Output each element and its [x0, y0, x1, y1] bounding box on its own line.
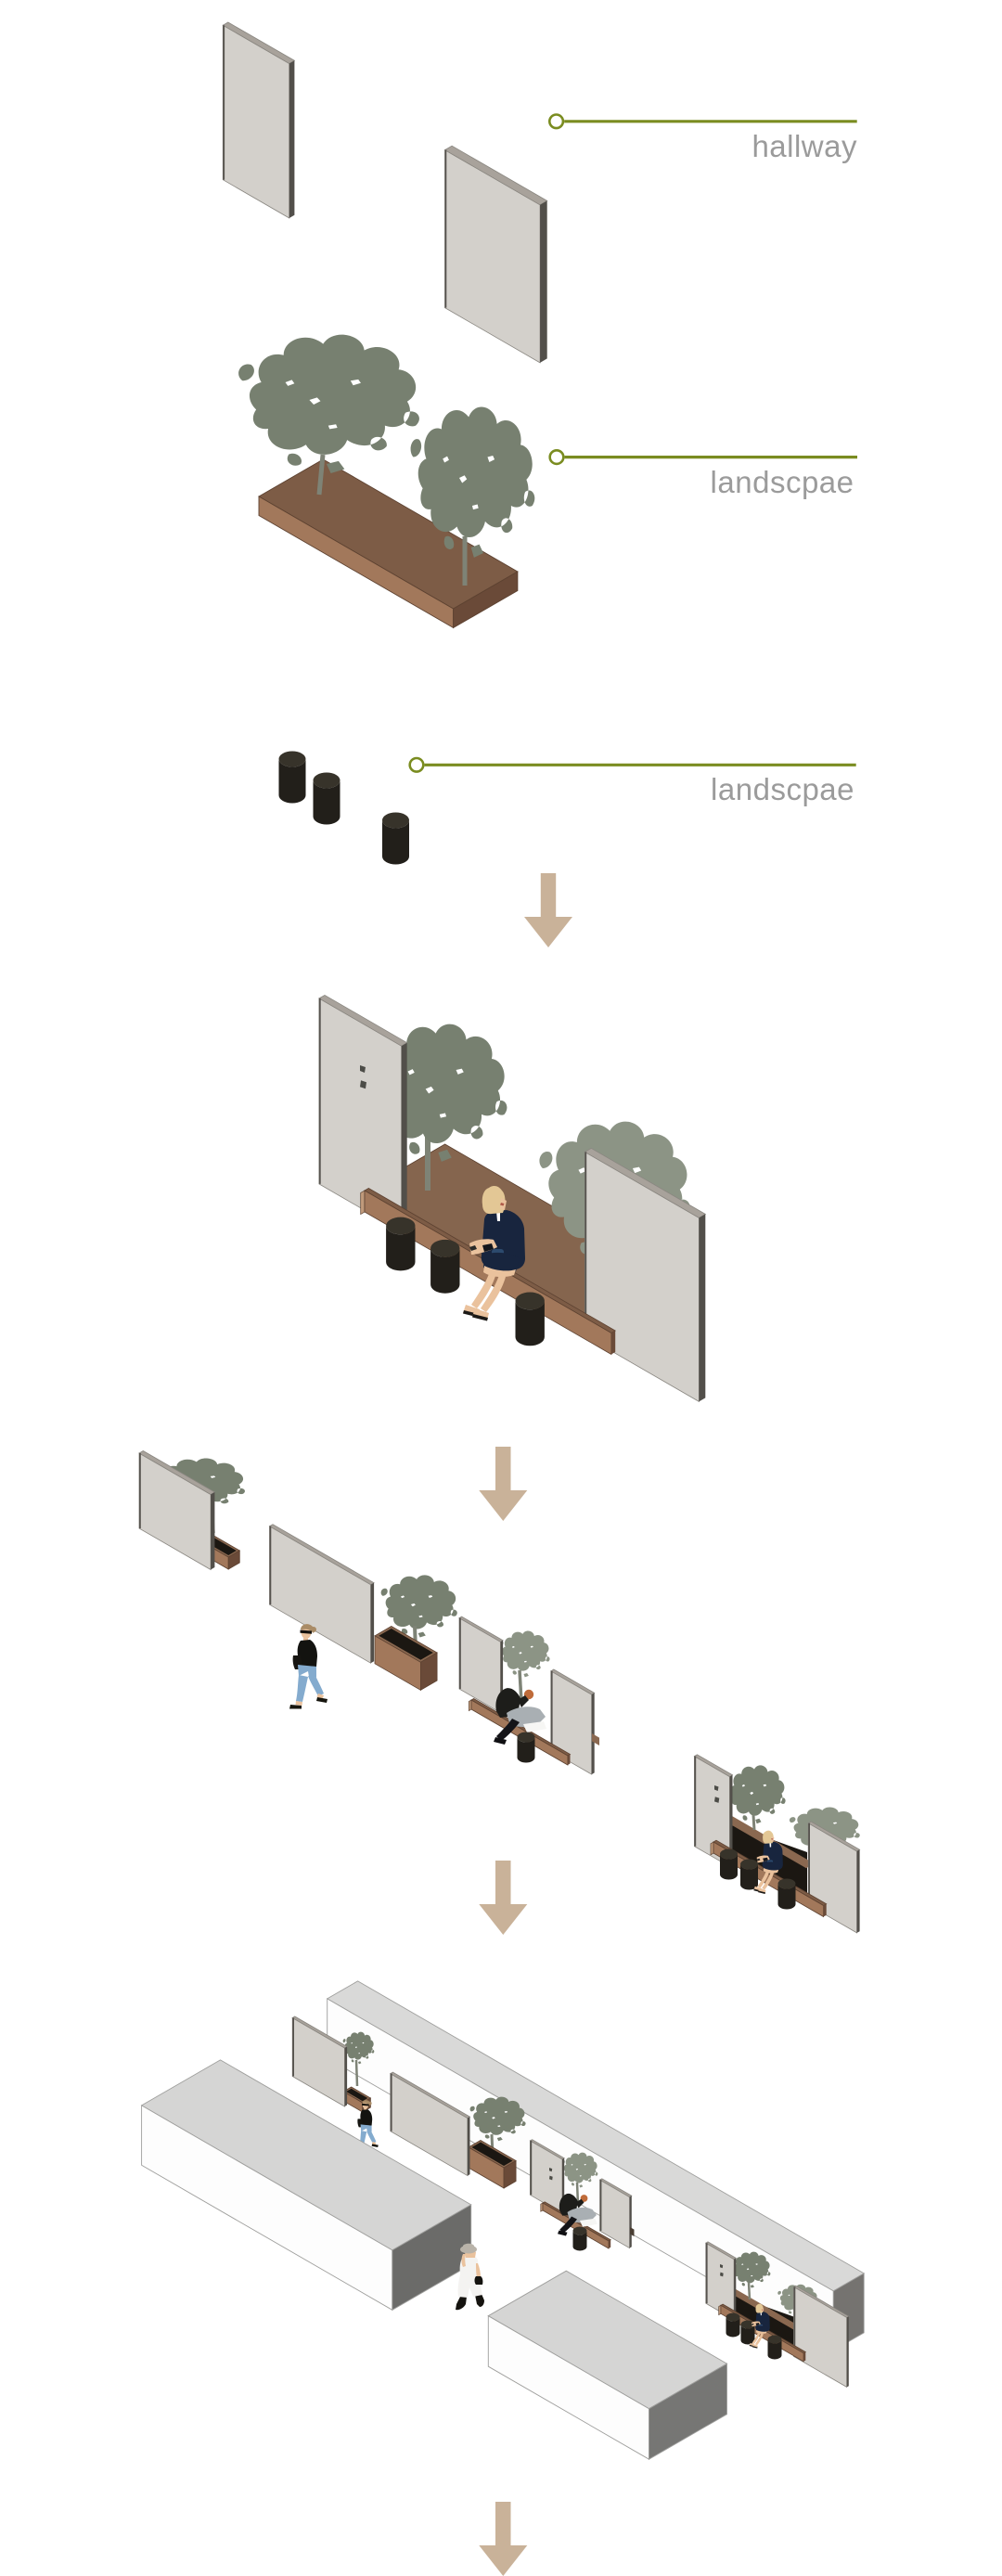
svg-text:landscpae: landscpae: [711, 465, 854, 499]
svg-text:landscpae: landscpae: [711, 772, 854, 806]
svg-text:hallway: hallway: [751, 129, 857, 163]
